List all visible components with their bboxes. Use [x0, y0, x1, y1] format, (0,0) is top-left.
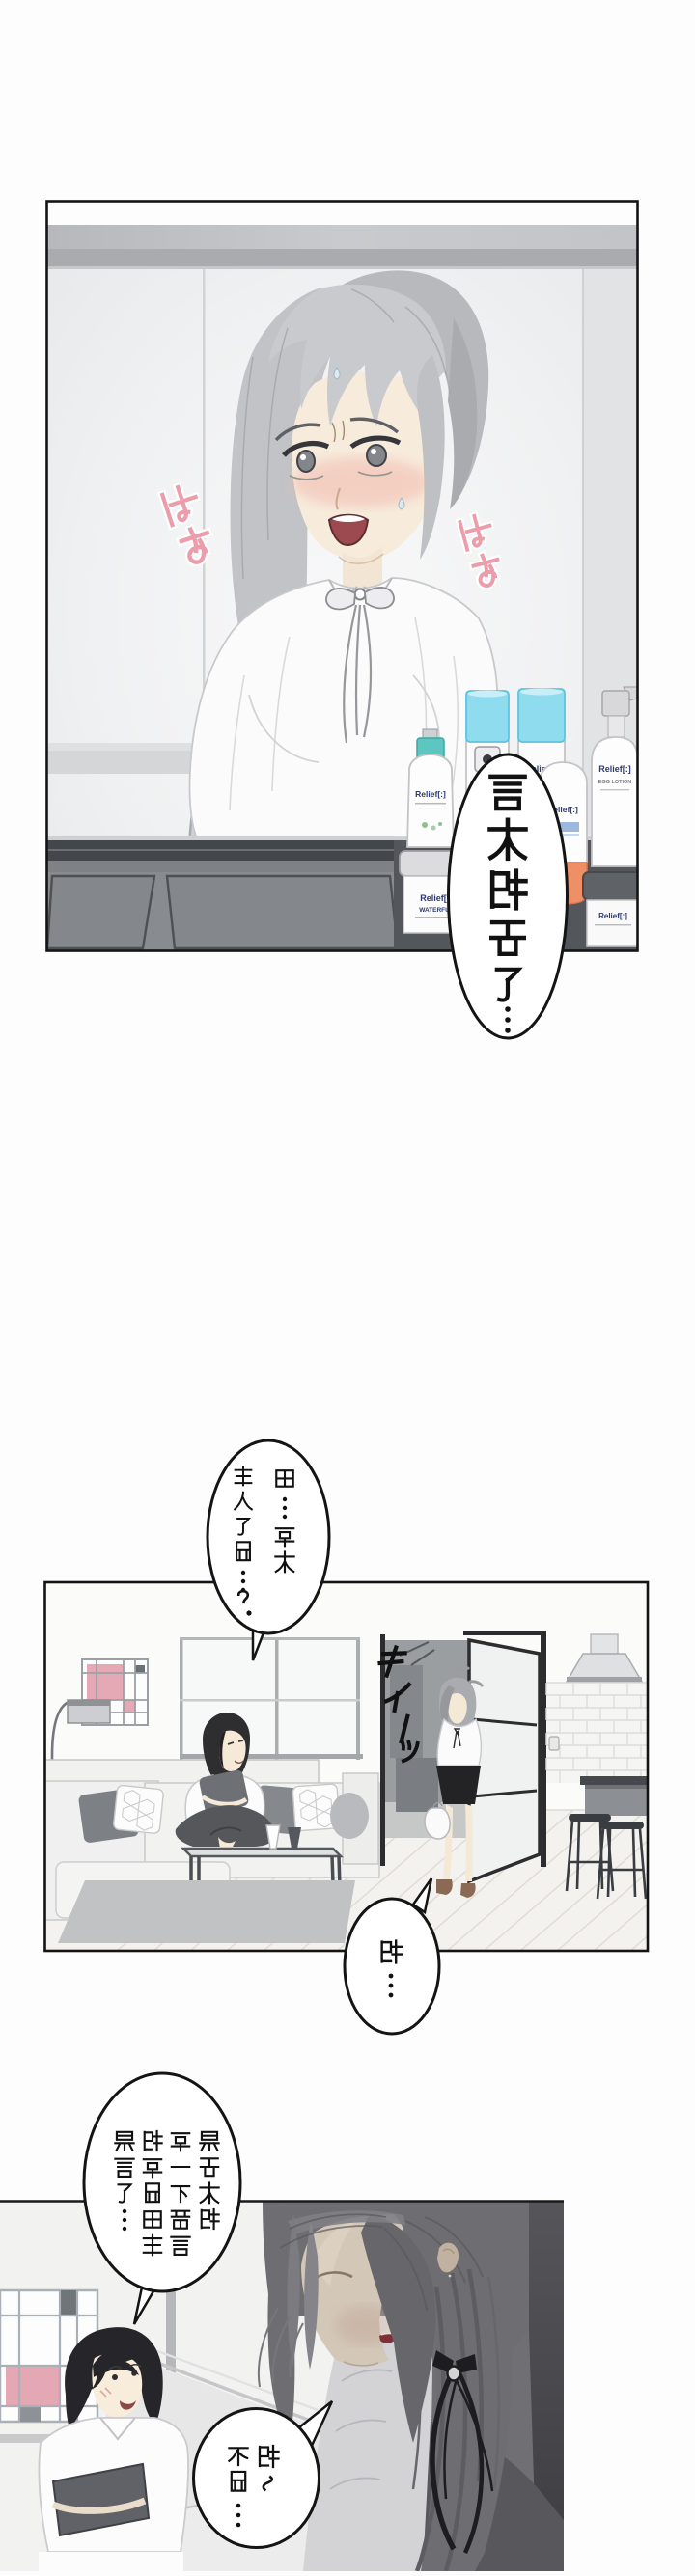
svg-text:Relief[:]: Relief[:] [415, 789, 446, 799]
svg-text:Relief[:]: Relief[:] [598, 912, 627, 920]
svg-text:Relief[:]: Relief[:] [598, 764, 631, 774]
svg-text:EGG LOTION: EGG LOTION [598, 780, 632, 785]
